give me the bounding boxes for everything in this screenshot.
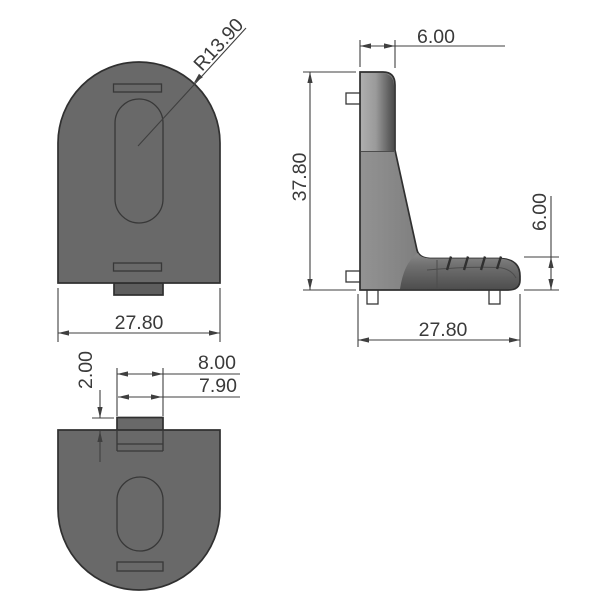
outer-width-arrow-left xyxy=(117,371,128,376)
front-width-dimension: 27.80 xyxy=(115,312,164,334)
side-upper-tab xyxy=(346,93,361,104)
side-height-arrow-top xyxy=(307,72,312,83)
side-base-height-arrow-bottom xyxy=(548,279,553,290)
cad-drawing-canvas: R13.90 27.80 6.00 xyxy=(0,0,600,600)
bottom-view-tab xyxy=(117,418,163,431)
bottom-outer-width-dimension: 8.00 xyxy=(198,352,236,374)
front-view: R13.90 27.80 xyxy=(58,14,248,342)
side-base-height-dimension: 6.00 xyxy=(529,193,551,231)
front-bottom-tab xyxy=(114,283,163,295)
inner-width-arrow-left xyxy=(118,394,129,399)
side-thickness-arrow-right xyxy=(384,43,395,48)
side-lower-tab xyxy=(346,271,361,282)
side-base-width-arrow-right xyxy=(509,337,520,342)
side-height-dimension: 37.80 xyxy=(289,152,311,201)
bottom-view-body xyxy=(58,430,220,590)
outer-width-arrow-right xyxy=(152,371,163,376)
side-base-width-dimension: 27.80 xyxy=(419,319,468,341)
bottom-inner-width-dimension: 7.90 xyxy=(199,375,237,397)
side-base-width-arrow-left xyxy=(358,337,369,342)
front-width-arrow-left xyxy=(58,330,69,335)
front-radius-dimension: R13.90 xyxy=(189,14,248,75)
bottom-view: 2.00 8.00 7.90 xyxy=(58,351,240,590)
side-base-height-arrow-top xyxy=(548,257,553,268)
side-view: 6.00 37.80 6.00 27.80 xyxy=(289,26,559,347)
step-arrow-down xyxy=(97,407,102,418)
side-thickness-dimension: 6.00 xyxy=(417,26,455,48)
radius-arrowhead xyxy=(194,74,203,84)
side-height-arrow-bottom xyxy=(307,279,312,290)
inner-width-arrow-right xyxy=(151,394,162,399)
side-thickness-arrow-left xyxy=(360,43,371,48)
front-body xyxy=(58,62,220,283)
front-width-arrow-right xyxy=(209,330,220,335)
side-leg-highlight-face xyxy=(361,73,394,151)
bottom-step-dimension: 2.00 xyxy=(75,351,97,389)
